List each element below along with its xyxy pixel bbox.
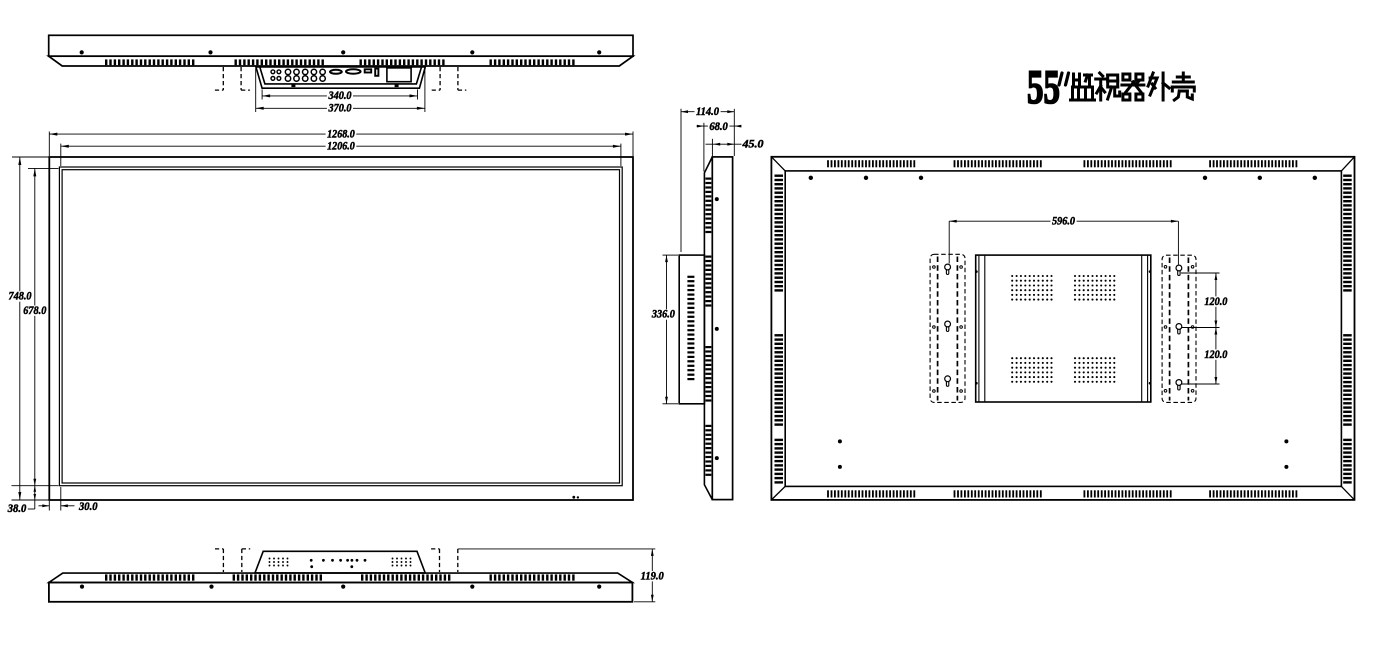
svg-text:596.0: 596.0: [1052, 215, 1075, 227]
svg-text:370.0: 370.0: [328, 103, 352, 115]
svg-text:120.0: 120.0: [1204, 349, 1227, 361]
svg-text:119.0: 119.0: [641, 570, 664, 582]
svg-text:336.0: 336.0: [651, 309, 675, 321]
svg-text:68.0: 68.0: [709, 121, 728, 133]
svg-text:340.0: 340.0: [328, 90, 352, 102]
svg-text:55: 55: [1027, 60, 1060, 114]
svg-text:748.0: 748.0: [8, 291, 31, 303]
svg-text:114.0: 114.0: [696, 106, 719, 118]
svg-text:30.0: 30.0: [78, 501, 98, 513]
svg-text:45.0: 45.0: [741, 138, 763, 150]
svg-text:38.0: 38.0: [7, 503, 27, 515]
svg-text:1268.0: 1268.0: [327, 128, 355, 140]
svg-text:678.0: 678.0: [23, 305, 46, 317]
svg-text:1206.0: 1206.0: [327, 140, 355, 152]
svg-text:120.0: 120.0: [1204, 296, 1227, 308]
